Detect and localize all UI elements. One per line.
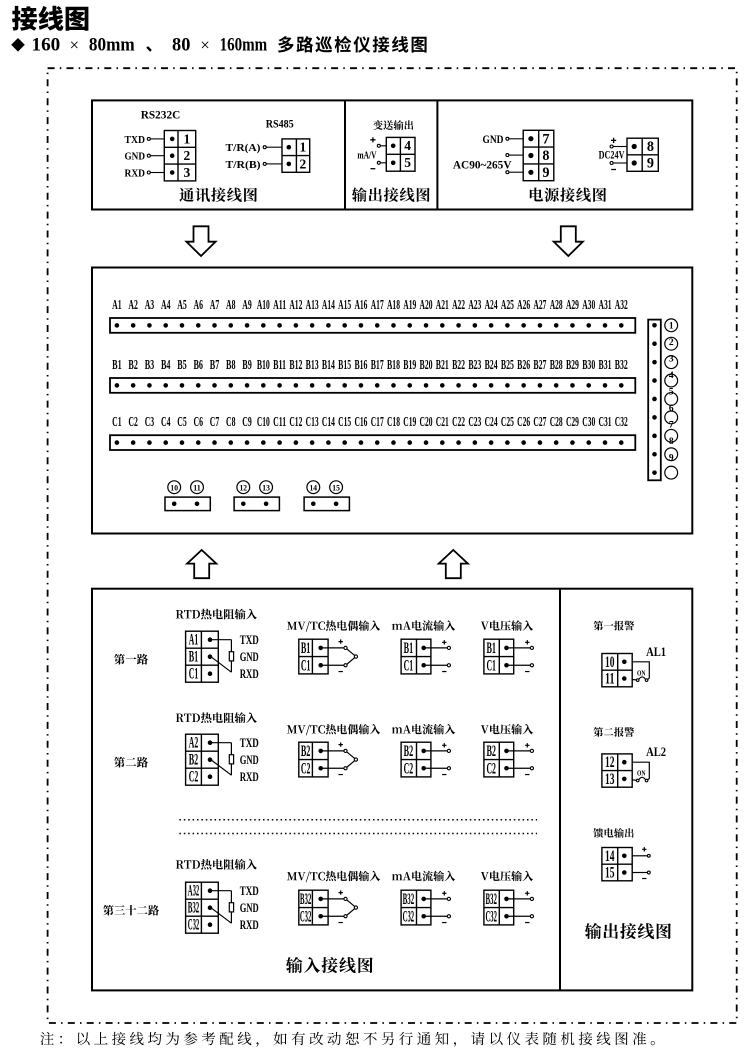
svg-text:RXD: RXD (125, 167, 146, 179)
svg-text:C32: C32 (485, 908, 497, 925)
svg-text:A16: A16 (354, 298, 367, 313)
svg-text:B16: B16 (354, 358, 367, 373)
svg-text:DC24V: DC24V (599, 150, 626, 162)
svg-text:12: 12 (605, 754, 615, 771)
svg-text:C22: C22 (452, 415, 465, 430)
svg-text:B1: B1 (112, 358, 122, 373)
svg-text:9: 9 (647, 156, 654, 172)
svg-text:C2: C2 (301, 760, 311, 777)
svg-text:TXD: TXD (240, 633, 259, 647)
svg-text:C5: C5 (177, 415, 187, 430)
svg-text:B22: B22 (452, 358, 465, 373)
svg-text:2: 2 (300, 156, 307, 171)
svg-text:AL2: AL2 (646, 745, 666, 759)
svg-text:10: 10 (605, 654, 615, 671)
svg-text:2: 2 (669, 338, 674, 348)
svg-text:B2: B2 (189, 752, 199, 769)
svg-text:B32: B32 (300, 891, 312, 908)
svg-text:C9: C9 (242, 415, 252, 430)
svg-text:C32: C32 (615, 415, 628, 430)
svg-text:A1: A1 (112, 298, 122, 313)
svg-text:C11: C11 (273, 415, 286, 430)
svg-text:×: × (200, 36, 210, 55)
svg-text:A26: A26 (517, 298, 530, 313)
svg-text:11: 11 (605, 671, 615, 688)
svg-text:B1: B1 (404, 640, 414, 657)
svg-text:B4: B4 (161, 358, 171, 373)
svg-text:C2: C2 (128, 415, 138, 430)
svg-text:C20: C20 (420, 415, 433, 430)
svg-text:11: 11 (193, 482, 201, 492)
svg-text:A15: A15 (338, 298, 351, 313)
svg-text:3: 3 (669, 355, 674, 365)
svg-text:B10: B10 (257, 358, 270, 373)
svg-text:C29: C29 (566, 415, 579, 430)
svg-text:B32: B32 (403, 891, 415, 908)
svg-text:B1: B1 (189, 649, 199, 666)
svg-text:B9: B9 (242, 358, 252, 373)
svg-text:A19: A19 (403, 298, 416, 313)
svg-text:B2: B2 (404, 743, 414, 760)
svg-text:B1: B1 (486, 640, 496, 657)
svg-text:AC90~265V: AC90~265V (453, 157, 512, 171)
svg-text:1: 1 (184, 131, 191, 146)
svg-text:B19: B19 (403, 358, 416, 373)
svg-text:C6: C6 (194, 415, 204, 430)
svg-text:A27: A27 (533, 298, 546, 313)
svg-text:B17: B17 (371, 358, 384, 373)
svg-text:A30: A30 (582, 298, 595, 313)
svg-text:C12: C12 (289, 415, 302, 430)
svg-text:C1: C1 (301, 657, 311, 674)
svg-text:13: 13 (605, 771, 615, 788)
svg-text:C1: C1 (486, 657, 496, 674)
svg-text:B5: B5 (177, 358, 187, 373)
svg-text:T/R(B): T/R(B) (226, 159, 261, 171)
svg-text:15: 15 (605, 865, 615, 882)
svg-text:12: 12 (240, 482, 248, 492)
svg-text:13: 13 (262, 482, 270, 492)
svg-text:RS485: RS485 (266, 119, 294, 131)
svg-text:GND: GND (240, 753, 259, 767)
svg-text:A1: A1 (189, 632, 199, 649)
svg-text:GND: GND (125, 151, 146, 163)
svg-text:10: 10 (170, 482, 178, 492)
svg-text:C27: C27 (533, 415, 546, 430)
svg-text:C24: C24 (485, 415, 498, 430)
svg-text:TXD: TXD (240, 884, 259, 898)
svg-text:C13: C13 (306, 415, 319, 430)
svg-text:TXD: TXD (240, 736, 259, 750)
svg-text:C23: C23 (468, 415, 481, 430)
svg-text:B32: B32 (615, 358, 628, 373)
svg-text:B12: B12 (289, 358, 302, 373)
svg-text:9: 9 (669, 453, 674, 463)
svg-text:C7: C7 (210, 415, 220, 430)
svg-text:C2: C2 (404, 760, 414, 777)
svg-text:C32: C32 (300, 908, 312, 925)
svg-text:160: 160 (32, 35, 61, 56)
svg-text:RXD: RXD (240, 667, 259, 681)
svg-text:A32: A32 (615, 298, 628, 313)
svg-text:B25: B25 (501, 358, 514, 373)
svg-text:B7: B7 (210, 358, 220, 373)
svg-text:C4: C4 (161, 415, 171, 430)
svg-text:C8: C8 (226, 415, 236, 430)
svg-text:B23: B23 (468, 358, 481, 373)
svg-text:RXD: RXD (240, 918, 259, 932)
svg-text:C28: C28 (550, 415, 563, 430)
svg-text:A7: A7 (210, 298, 220, 313)
svg-text:A21: A21 (436, 298, 449, 313)
svg-text:6: 6 (669, 404, 674, 414)
svg-text:C1: C1 (189, 666, 199, 683)
svg-text:14: 14 (310, 482, 318, 492)
svg-text:A13: A13 (306, 298, 319, 313)
svg-text:C1: C1 (112, 415, 122, 430)
svg-text:C10: C10 (257, 415, 270, 430)
svg-text:B31: B31 (599, 358, 612, 373)
svg-text:4: 4 (669, 371, 674, 381)
svg-text:A8: A8 (226, 298, 236, 313)
svg-text:B14: B14 (322, 358, 335, 373)
svg-text:C2: C2 (486, 760, 496, 777)
svg-text:C1: C1 (404, 657, 414, 674)
svg-text:A23: A23 (468, 298, 481, 313)
svg-text:A10: A10 (257, 298, 270, 313)
svg-text:C31: C31 (599, 415, 612, 430)
svg-text:A2: A2 (189, 735, 199, 752)
svg-text:B18: B18 (387, 358, 400, 373)
svg-text:C15: C15 (338, 415, 351, 430)
svg-text:C3: C3 (145, 415, 155, 430)
svg-text:B30: B30 (582, 358, 595, 373)
svg-text:C17: C17 (371, 415, 384, 430)
svg-text:14: 14 (605, 848, 615, 865)
svg-text:ON: ON (637, 769, 646, 778)
svg-text:B27: B27 (533, 358, 546, 373)
svg-text:B13: B13 (306, 358, 319, 373)
svg-text:A32: A32 (188, 883, 200, 900)
svg-text:B11: B11 (273, 358, 286, 373)
svg-text:5: 5 (669, 388, 674, 398)
svg-text:B6: B6 (194, 358, 204, 373)
svg-text:B8: B8 (226, 358, 236, 373)
svg-text:B2: B2 (128, 358, 138, 373)
svg-text:C32: C32 (403, 908, 415, 925)
svg-text:C30: C30 (582, 415, 595, 430)
svg-text:2: 2 (184, 148, 191, 163)
svg-text:5: 5 (404, 155, 411, 170)
svg-text:B21: B21 (436, 358, 449, 373)
svg-text:GND: GND (483, 133, 504, 146)
svg-text:B32: B32 (485, 891, 497, 908)
svg-text:C16: C16 (354, 415, 367, 430)
svg-text:15: 15 (332, 482, 340, 492)
svg-text:4: 4 (404, 138, 411, 153)
svg-text:A28: A28 (550, 298, 563, 313)
svg-text:8: 8 (669, 437, 674, 447)
svg-text:GND: GND (240, 901, 259, 915)
svg-text:ON: ON (637, 668, 646, 677)
svg-text:A2: A2 (128, 298, 138, 313)
svg-text:1: 1 (669, 322, 674, 332)
svg-text:80: 80 (172, 35, 190, 56)
svg-text:B15: B15 (338, 358, 351, 373)
svg-text:8: 8 (542, 148, 549, 164)
svg-text:AL1: AL1 (646, 645, 666, 659)
svg-text:A31: A31 (599, 298, 612, 313)
svg-text:B2: B2 (486, 743, 496, 760)
svg-text:B28: B28 (550, 358, 563, 373)
svg-text:A5: A5 (177, 298, 187, 313)
svg-text:TXD: TXD (125, 134, 146, 146)
svg-text:B29: B29 (566, 358, 579, 373)
svg-text:A6: A6 (194, 298, 204, 313)
svg-text:RXD: RXD (240, 770, 259, 784)
svg-text:A11: A11 (273, 298, 286, 313)
svg-text:C2: C2 (189, 769, 199, 786)
svg-text:7: 7 (542, 131, 549, 147)
svg-text:7: 7 (669, 420, 674, 430)
svg-text:A25: A25 (501, 298, 514, 313)
svg-text:160mm: 160mm (220, 35, 268, 56)
svg-text:9: 9 (542, 165, 549, 181)
svg-text:A22: A22 (452, 298, 465, 313)
svg-text:A18: A18 (387, 298, 400, 313)
svg-text:A20: A20 (420, 298, 433, 313)
svg-text:B32: B32 (188, 900, 200, 917)
svg-text:C25: C25 (501, 415, 514, 430)
svg-text:3: 3 (184, 165, 191, 180)
svg-text:A17: A17 (371, 298, 384, 313)
svg-text:C21: C21 (436, 415, 449, 430)
svg-text:RS232C: RS232C (141, 110, 181, 122)
svg-text:A29: A29 (566, 298, 579, 313)
svg-text:C32: C32 (188, 917, 200, 934)
svg-text:A4: A4 (161, 298, 171, 313)
svg-text:1: 1 (300, 140, 307, 155)
svg-text:B20: B20 (420, 358, 433, 373)
svg-text:C18: C18 (387, 415, 400, 430)
svg-text:mA/V: mA/V (357, 149, 376, 161)
svg-text:80mm: 80mm (89, 35, 135, 56)
svg-text:8: 8 (647, 139, 654, 155)
svg-text:C26: C26 (517, 415, 530, 430)
svg-text:A9: A9 (242, 298, 252, 313)
svg-text:B1: B1 (301, 640, 311, 657)
svg-text:A12: A12 (289, 298, 302, 313)
svg-text:A24: A24 (485, 298, 498, 313)
svg-text:C14: C14 (322, 415, 335, 430)
svg-text:B3: B3 (145, 358, 155, 373)
svg-text:C19: C19 (403, 415, 416, 430)
svg-text:B2: B2 (301, 743, 311, 760)
svg-text:A14: A14 (322, 298, 335, 313)
svg-text:GND: GND (240, 650, 259, 664)
svg-text:A3: A3 (145, 298, 155, 313)
svg-text:T/R(A): T/R(A) (226, 142, 261, 154)
svg-text:B26: B26 (517, 358, 530, 373)
svg-text:×: × (70, 36, 80, 55)
svg-text:B24: B24 (485, 358, 498, 373)
